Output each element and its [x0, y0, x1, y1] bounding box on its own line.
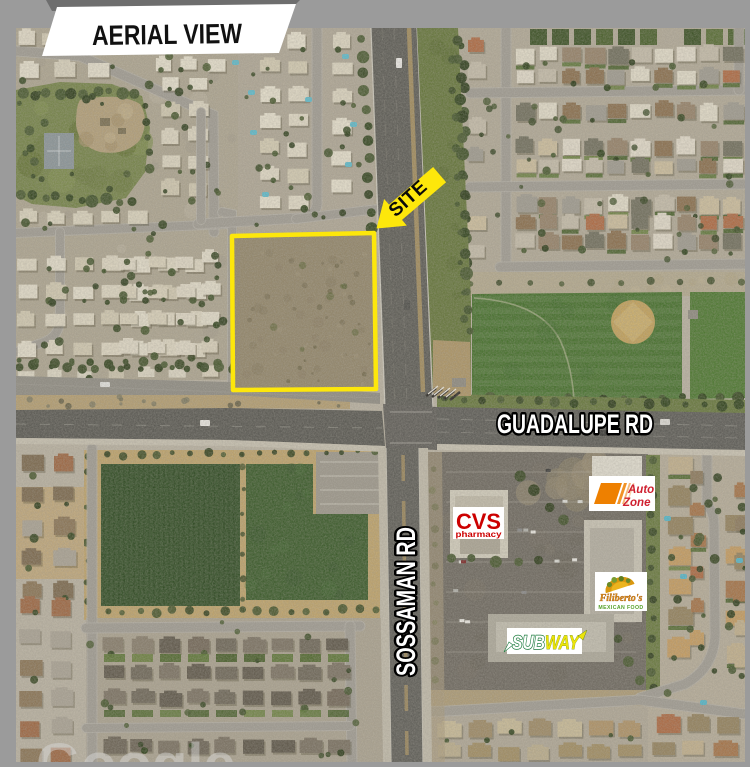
svg-text:WAY: WAY	[545, 632, 581, 654]
svg-text:MEXICAN FOOD: MEXICAN FOOD	[598, 605, 643, 611]
svg-text:Google: Google	[36, 732, 236, 762]
svg-text:pharmacy: pharmacy	[456, 529, 502, 539]
svg-text:Filiberto's: Filiberto's	[599, 593, 643, 604]
svg-text:SOSSAMAN RD: SOSSAMAN RD	[391, 527, 421, 676]
svg-text:Auto: Auto	[627, 484, 654, 496]
svg-text:GUADALUPE RD: GUADALUPE RD	[497, 409, 653, 439]
svg-text:AERIAL VIEW: AERIAL VIEW	[92, 18, 243, 51]
svg-text:SUB: SUB	[512, 632, 545, 654]
svg-text:Zone: Zone	[622, 497, 651, 509]
